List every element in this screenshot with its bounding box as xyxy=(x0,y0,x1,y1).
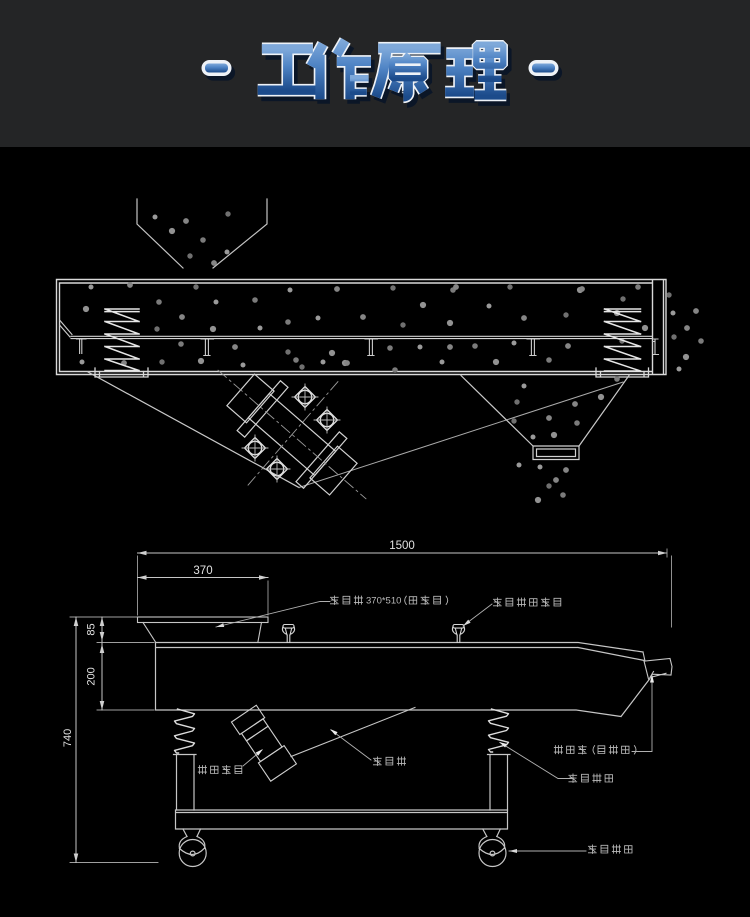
svg-text:740: 740 xyxy=(62,729,74,747)
svg-text:370*510: 370*510 xyxy=(366,596,401,607)
svg-text:200: 200 xyxy=(86,667,98,685)
svg-text:1500: 1500 xyxy=(389,540,415,552)
svg-text:370: 370 xyxy=(193,565,212,577)
svg-text:85: 85 xyxy=(86,623,98,635)
